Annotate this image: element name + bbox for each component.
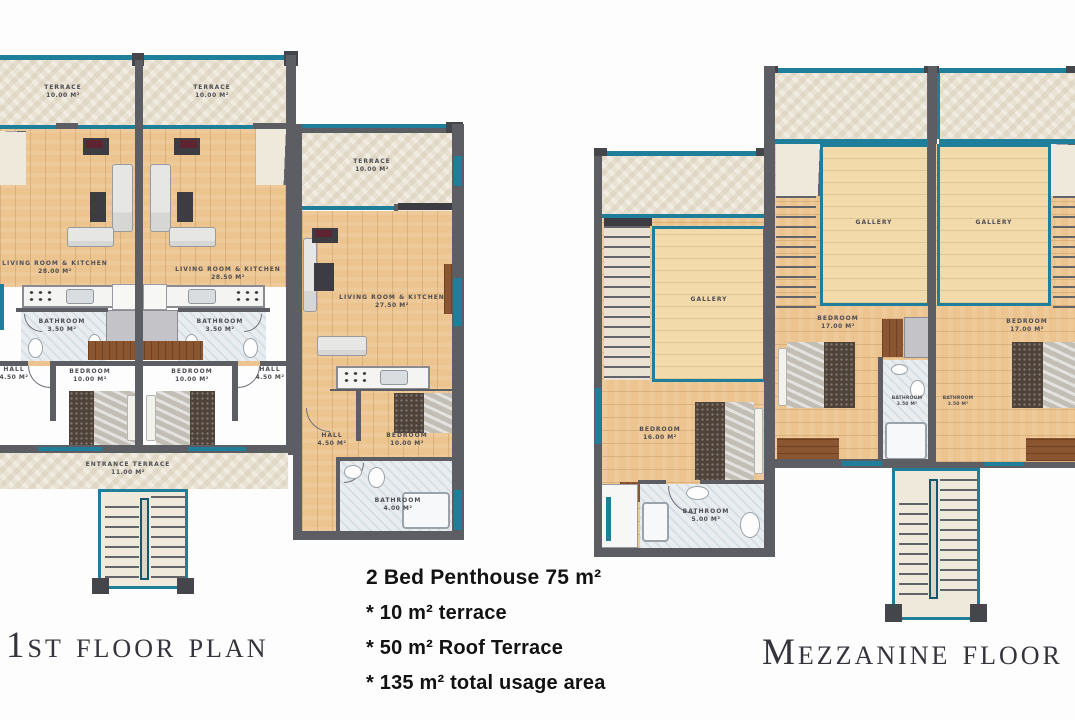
wall — [293, 124, 302, 538]
tv-screen — [180, 140, 197, 148]
terrace-floor — [601, 156, 767, 216]
bed-pillow — [146, 395, 156, 441]
bed-mattress — [190, 391, 215, 445]
room-label: Gallery — [834, 219, 914, 227]
room-area: 4.50 m² — [240, 374, 300, 382]
gallery-opening — [652, 226, 766, 382]
stove-icon — [342, 370, 366, 384]
window — [454, 278, 462, 326]
room-label: Bedroom10.00 m² — [362, 432, 452, 448]
wash-basin — [686, 486, 709, 500]
room-label: Living Room & Kitchen28.00 m² — [0, 260, 110, 276]
bed-mattress — [394, 393, 424, 433]
window — [302, 206, 398, 210]
bed-blanket — [1043, 342, 1075, 408]
room-label: Hall4.50 m² — [297, 432, 367, 448]
wall — [594, 156, 602, 556]
fridge — [143, 284, 167, 310]
bed-pillow — [754, 408, 763, 474]
wash-basin — [891, 364, 908, 375]
room-label: Bedroom17.00 m² — [982, 318, 1072, 334]
sofa — [317, 336, 367, 356]
stair-rail — [140, 498, 149, 580]
stairs — [1053, 196, 1075, 308]
room-name: Gallery — [834, 219, 914, 227]
room-name: Bedroom — [615, 426, 705, 434]
room-name: Bedroom — [45, 368, 135, 376]
terrace-floor — [775, 73, 927, 139]
room-label: Hall4.50 m² — [240, 366, 300, 382]
window — [595, 388, 601, 444]
room-area: 3.50 m² — [180, 326, 260, 334]
room-label: Terrace10.00 m² — [18, 84, 108, 100]
wash-basin — [344, 465, 362, 479]
summary-title: 2 Bed Penthouse 75 m² — [366, 566, 606, 590]
room-name: Terrace — [18, 84, 108, 92]
room-label: Bathroom4.00 m² — [353, 497, 443, 513]
stair-hatch — [398, 203, 452, 210]
room-name: Entrance Terrace — [48, 461, 208, 469]
pillar — [970, 604, 987, 622]
room-area: 17.00 m² — [793, 323, 883, 331]
summary-bullet: * 50 m² Roof Terrace — [366, 637, 606, 660]
wardrobe — [88, 341, 203, 360]
bed-blanket — [725, 402, 754, 480]
room-area: 10.00 m² — [327, 166, 417, 174]
room-area: 28.50 m² — [173, 274, 283, 282]
room-name: Hall — [0, 366, 44, 374]
room-area: 10.00 m² — [18, 92, 108, 100]
room-label: Entrance Terrace11.00 m² — [48, 461, 208, 477]
bed-pillow — [778, 348, 787, 406]
penthouse-summary: 2 Bed Penthouse 75 m² * 10 m² terrace * … — [366, 566, 606, 707]
toilet — [243, 338, 258, 358]
room-label: Bedroom17.00 m² — [793, 315, 883, 331]
room-label: Bedroom16.00 m² — [615, 426, 705, 442]
room-label: Terrace10.00 m² — [327, 158, 417, 174]
window — [454, 156, 462, 186]
room-name: Terrace — [167, 84, 257, 92]
stairs — [604, 226, 650, 380]
room-label: Gallery — [954, 219, 1034, 227]
spiral-stairs — [0, 131, 26, 185]
room-label: Hall4.50 m² — [0, 366, 44, 382]
fridge — [112, 284, 136, 310]
room-name: Bathroom — [180, 318, 260, 326]
window — [842, 461, 882, 466]
room-area: 4.50 m² — [297, 440, 367, 448]
wall — [452, 124, 464, 538]
wall — [594, 548, 772, 557]
room-area: 27.50 m² — [332, 302, 452, 310]
room-name: Bedroom — [147, 368, 237, 376]
wardrobe — [882, 319, 903, 357]
sofa — [112, 164, 133, 232]
window — [937, 73, 940, 139]
room-name: Living Room & Kitchen — [0, 260, 110, 268]
room-name: Bathroom — [661, 508, 751, 516]
terrace-railing — [0, 55, 294, 60]
toilet — [368, 467, 385, 488]
room-name: Bedroom — [982, 318, 1072, 326]
room-area: 10.00 m² — [167, 92, 257, 100]
room-name: Bathroom — [22, 318, 102, 326]
bed-mattress — [69, 391, 94, 445]
spiral-stairs — [1051, 144, 1075, 196]
bed-blanket — [156, 391, 190, 445]
stairs — [151, 496, 185, 584]
shower — [885, 422, 927, 460]
bed-blanket — [787, 342, 824, 408]
pillar — [177, 578, 194, 594]
stairs — [776, 196, 816, 308]
stairwell — [98, 489, 188, 589]
bed-mattress — [1012, 342, 1043, 408]
window — [38, 447, 102, 451]
wall — [293, 531, 464, 540]
room-area: 3.50 m² — [22, 326, 102, 334]
room-area: 5.00 m² — [661, 516, 751, 524]
window — [0, 284, 4, 330]
spiral-stairs — [256, 129, 286, 185]
room-area: 28.00 m² — [0, 268, 110, 276]
desk-chair — [90, 192, 106, 222]
room-label: Bathroom3.50 m² — [180, 318, 260, 334]
terrace-floor — [939, 73, 1075, 139]
room-name: Hall — [240, 366, 300, 374]
room-area: 16.00 m² — [615, 434, 705, 442]
party-wall — [764, 66, 775, 557]
room-area: 10.00 m² — [147, 376, 237, 384]
room-label: Living Room & Kitchen28.50 m² — [173, 266, 283, 282]
window — [606, 497, 611, 541]
bed-mattress — [824, 342, 855, 408]
room-name: Bathroom — [353, 497, 443, 505]
room-name: Terrace — [327, 158, 417, 166]
sofa — [150, 164, 171, 232]
kitchen-sink — [66, 289, 94, 304]
room-area: 4.00 m² — [353, 505, 443, 513]
room-label: Bathroom5.00 m² — [661, 508, 751, 524]
room-name: Gallery — [954, 219, 1034, 227]
room-area: 3.50 m² — [884, 402, 930, 408]
sofa — [169, 227, 216, 247]
stair-hatch — [604, 218, 652, 226]
room-area: 10.00 m² — [45, 376, 135, 384]
stove-icon — [27, 289, 53, 303]
tv-screen — [86, 140, 103, 148]
room-label: Bathroom3.50 m² — [22, 318, 102, 334]
stair-rail — [929, 479, 938, 599]
room-area: 4.50 m² — [0, 374, 44, 382]
desk-chair — [177, 192, 193, 222]
tv-screen — [315, 230, 332, 237]
wardrobe — [1026, 438, 1075, 461]
first-floor-title: 1st floor plan — [6, 624, 268, 667]
toilet — [28, 338, 43, 358]
room-label: Bathroom3.50 m² — [935, 396, 981, 408]
stairs — [105, 506, 139, 582]
room-name: Bedroom — [793, 315, 883, 323]
room-name: Living Room & Kitchen — [332, 294, 452, 302]
summary-bullet: * 135 m² total usage area — [366, 672, 606, 695]
room-name: Bedroom — [362, 432, 452, 440]
kitchen-sink — [380, 370, 408, 385]
room-area: 3.50 m² — [935, 402, 981, 408]
floor-plan-sheet: Terrace10.00 m² Terrace10.00 m² Terrace1… — [0, 0, 1075, 720]
window — [188, 447, 246, 451]
sofa — [67, 227, 114, 247]
room-label: Living Room & Kitchen27.50 m² — [332, 294, 452, 310]
wardrobe — [777, 438, 839, 461]
room-area: 11.00 m² — [48, 469, 208, 477]
party-wall — [135, 60, 143, 450]
stairwell — [892, 468, 980, 620]
desk-chair — [314, 263, 334, 291]
stove-icon — [234, 289, 260, 303]
room-area: 10.00 m² — [362, 440, 452, 448]
room-label: Bedroom10.00 m² — [45, 368, 135, 384]
room-label: Gallery — [669, 296, 749, 304]
pillar — [92, 578, 109, 594]
kitchen-sink — [188, 289, 216, 304]
room-name: Gallery — [669, 296, 749, 304]
stairs — [899, 503, 928, 595]
room-area: 17.00 m² — [982, 326, 1072, 334]
room-name: Hall — [297, 432, 367, 440]
room-label: Bathroom3.50 m² — [884, 396, 930, 408]
room-name: Living Room & Kitchen — [173, 266, 283, 274]
room-label: Bedroom10.00 m² — [147, 368, 237, 384]
summary-bullet: * 10 m² terrace — [366, 602, 606, 625]
spiral-stairs — [776, 144, 820, 196]
pillar — [885, 604, 902, 622]
room-label: Terrace10.00 m² — [167, 84, 257, 100]
mezzanine-floor-title: Mezzanine floor plan — [762, 631, 1075, 674]
bed-blanket — [424, 393, 452, 433]
window — [454, 490, 462, 530]
stairs — [940, 479, 977, 595]
